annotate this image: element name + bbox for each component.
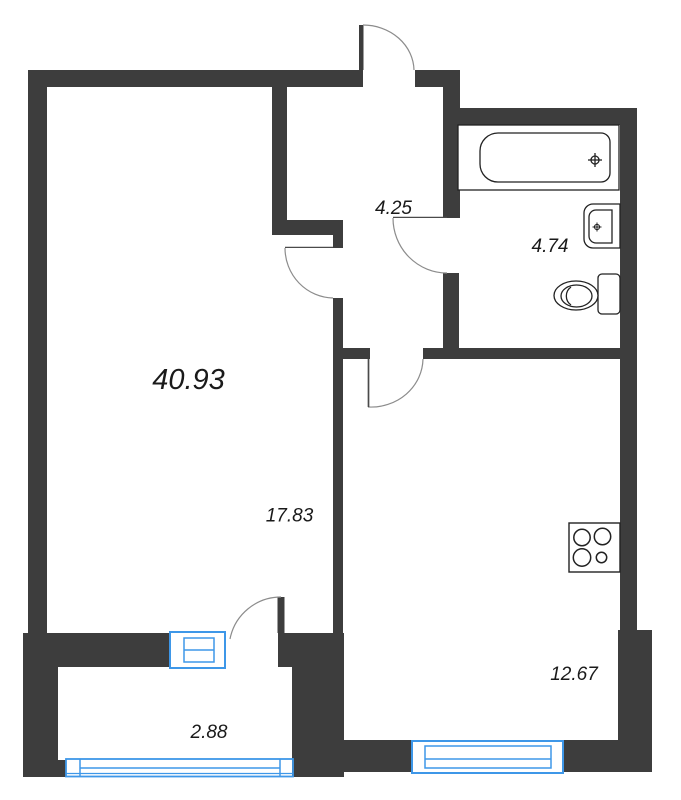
wall-bathroom-divider-lower (443, 273, 459, 348)
stove (569, 523, 620, 572)
bathtub (458, 125, 619, 190)
label-kitchen: 12.67 (550, 664, 599, 685)
floor-plan: 40.93 17.83 4.25 4.74 12.67 2.88 (0, 0, 681, 800)
door-leaves (285, 217, 447, 407)
label-hallway: 4.25 (375, 198, 412, 219)
entrance-door-arc (363, 25, 414, 70)
kitchen-window (412, 741, 563, 773)
wall-hall-bottom-left (334, 348, 370, 359)
living-room-door-arc (285, 248, 333, 298)
sink (584, 204, 620, 248)
toilet (554, 274, 620, 314)
wall-left (28, 70, 47, 633)
wall-bathroom-bottom (423, 348, 620, 359)
entrance-door-leaf (359, 25, 364, 70)
bathtub-basin (480, 133, 610, 182)
wall-balcony-corner (23, 760, 66, 777)
label-total-area: 40.93 (152, 364, 225, 396)
floor-plan-svg: 40.93 17.83 4.25 4.74 12.67 2.88 (0, 0, 681, 800)
stove-burner-top-left (574, 529, 590, 545)
living-room-window (170, 632, 225, 668)
wall-right-upper (620, 108, 637, 630)
wall-balcony-right (292, 633, 344, 777)
label-living-room: 17.83 (266, 506, 314, 527)
balcony-door-leaf (278, 597, 285, 633)
stove-burner-bottom-right (596, 552, 606, 562)
wall-door-jamb (333, 235, 343, 248)
wall-mainroom-bottom-left (23, 633, 170, 667)
label-bathroom: 4.74 (532, 236, 569, 257)
wall-hall-divider (272, 87, 287, 220)
stove-burner-bottom-left (573, 549, 590, 566)
label-balcony: 2.88 (190, 722, 228, 743)
toilet-bowl-inner (561, 285, 592, 307)
bathroom-door-arc (393, 218, 447, 273)
wall-top-right (415, 70, 460, 87)
kitchen-door-arc (368, 359, 423, 407)
balcony-glazing (66, 759, 293, 777)
toilet-tank (598, 274, 620, 314)
wall-bathroom-top (458, 108, 637, 125)
wall-top-left (28, 70, 363, 87)
window-sash (425, 746, 551, 768)
room-labels: 40.93 17.83 4.25 4.74 12.67 2.88 (152, 198, 599, 743)
wall-hall-stub (272, 220, 343, 235)
wall-kitchen-bottom-left (344, 740, 412, 772)
wall-kitchen-bottom-right (563, 740, 652, 772)
balcony-door-arc (230, 597, 281, 639)
stove-burner-top-right (594, 528, 610, 544)
